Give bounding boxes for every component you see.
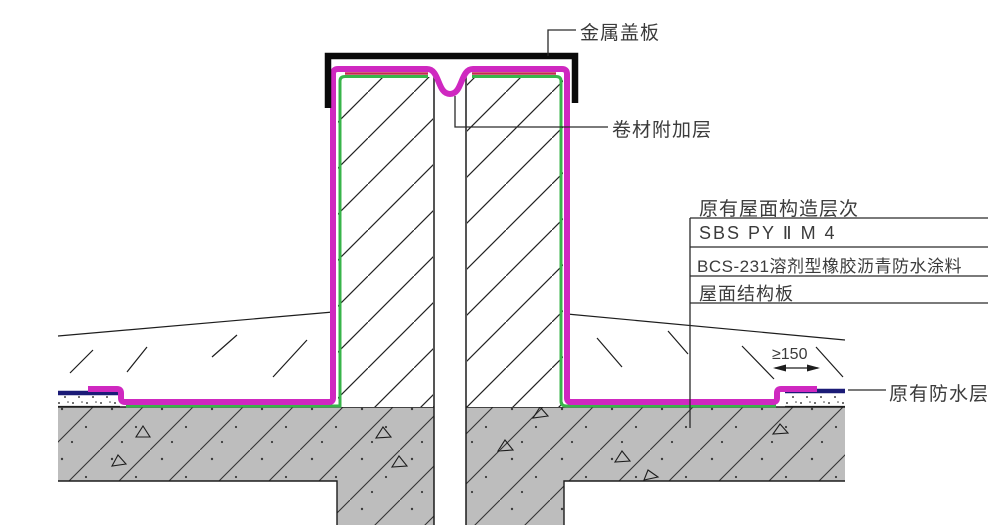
label-membrane-additional-layer: 卷材附加层 [612,115,712,142]
construction-detail-drawing: 金属盖板 卷材附加层 原有屋面构造层次 SBS PY Ⅱ M 4 BCS-231… [0,0,992,525]
overlap-dimension [773,365,820,372]
label-roof-layer-bcs-coating: BCS-231溶剂型橡胶沥青防水涂料 [697,252,962,277]
label-roof-structural-slab: 屋面结构板 [699,280,794,306]
label-existing-waterproof-layer: 原有防水层 [889,379,989,406]
dim-arrow-left [773,365,786,372]
dim-arrow-right [807,365,820,372]
label-metal-cover-plate: 金属盖板 [580,18,660,45]
label-roof-layer-sbs: SBS PY Ⅱ M 4 [699,223,837,244]
label-existing-roof-layers-title: 原有屋面构造层次 [699,194,859,221]
roof-structural-slab [58,407,845,525]
existing-roof-fill [58,312,845,379]
label-overlap-dimension: ≥150 [772,346,807,364]
